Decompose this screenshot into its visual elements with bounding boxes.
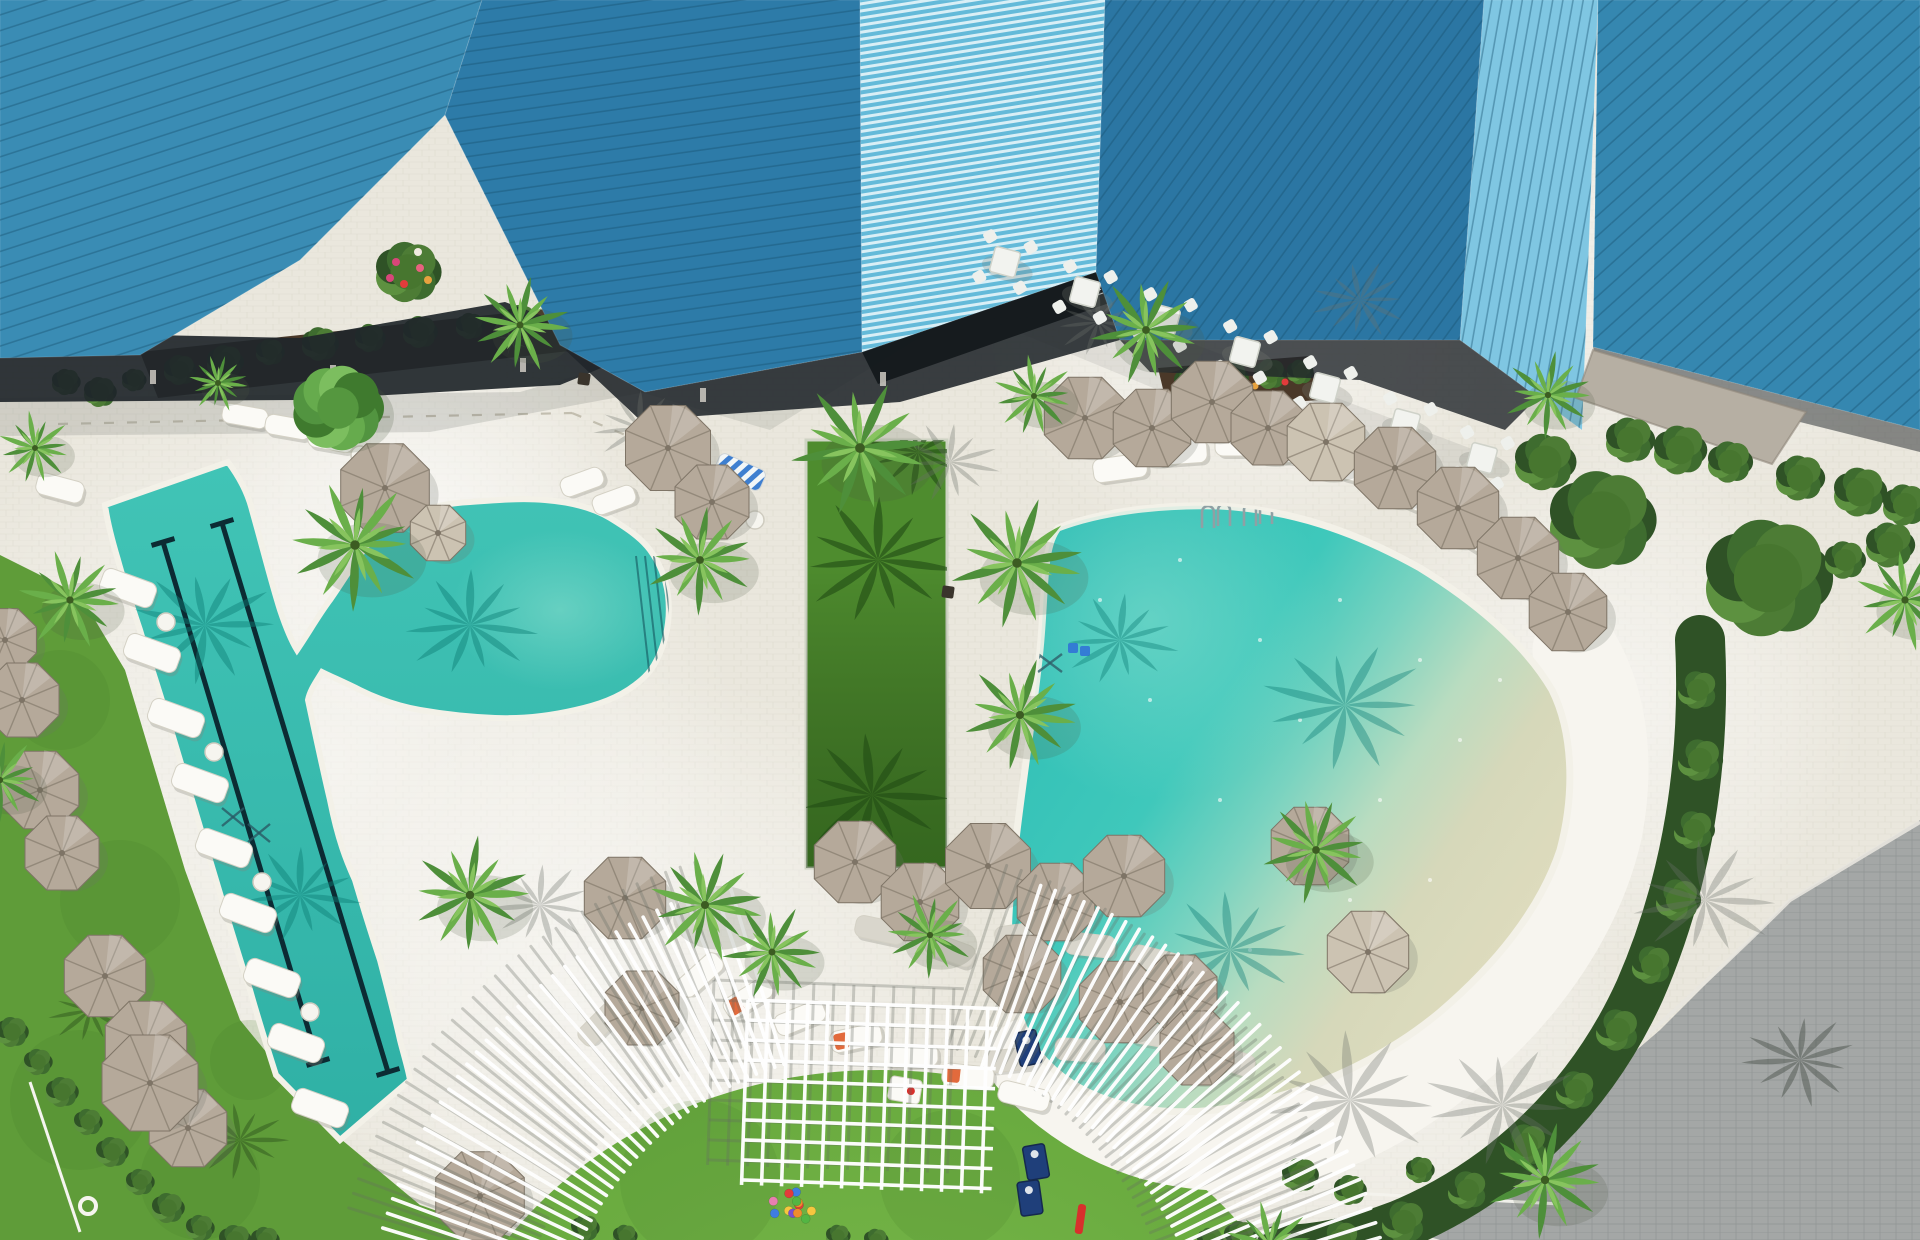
shrub [1529,446,1562,479]
umbrella-pole [1209,399,1215,405]
umbrella-pole [1455,505,1461,511]
palm-crown [32,445,38,451]
shrub [1666,436,1695,465]
pool-float [1080,646,1090,656]
umbrella-pole [1323,439,1329,445]
shrub [1893,493,1917,517]
flower [1282,379,1289,386]
play-ball [801,1214,810,1223]
flower [392,258,400,266]
water-sparkle [1378,798,1382,802]
column-post [150,370,156,384]
shrub [1565,1079,1587,1101]
play-ball [784,1189,793,1198]
dining-table [1229,336,1261,368]
umbrella-pole [147,1080,153,1086]
palm-crown [517,322,524,329]
umbrella-pole [709,499,715,505]
board [1017,1180,1044,1217]
umbrella-pole [1365,949,1371,955]
shrub [1392,1210,1416,1234]
shrub [1412,1162,1427,1177]
water-sparkle [1418,658,1422,662]
side-table [157,613,175,631]
palm-crown [1012,558,1022,568]
umbrella-pole [59,850,65,856]
palm-crown [855,443,865,453]
pool-float [1068,643,1078,653]
cornhole-board [1017,1180,1044,1217]
side-table [301,1003,319,1021]
palm-crown [769,949,776,956]
umbrella-pole [1149,425,1155,431]
shrub [3,1023,21,1041]
shrub [1606,1018,1630,1042]
play-ball [793,1209,802,1218]
trash-bin [577,372,591,386]
umbrella-pole [2,637,8,643]
palm-crown [701,901,709,909]
shrub [1457,1179,1479,1201]
shrub [53,1083,71,1101]
palm-crown [1142,326,1150,334]
water-sparkle [1458,738,1462,742]
shrub [159,1199,177,1217]
palm-crown [215,380,221,386]
palm-crown [927,932,933,938]
palm-crown [1031,393,1037,399]
palm-crown [1545,392,1551,398]
water-sparkle [1218,798,1222,802]
umbrella-pole [102,973,108,979]
shrub [1687,679,1709,701]
dining-table [1069,276,1101,308]
umbrella-pole [435,530,441,536]
umbrella-pole [1082,415,1088,421]
dining-table [989,246,1021,278]
shrub [80,1114,95,1129]
shrub [1641,954,1663,976]
umbrella-pole [1121,873,1127,879]
palm-crown [1901,596,1908,603]
column-post [880,372,886,386]
side-table [205,743,223,761]
water-sparkle [1338,598,1342,602]
palm-crown [1016,711,1024,719]
umbrella-pole [852,859,858,865]
water-sparkle [1148,698,1152,702]
shrub [1688,748,1712,772]
umbrella-pole [1117,999,1123,1005]
column-post [700,388,706,402]
foliage-clump [317,387,358,428]
water-sparkle [1348,898,1352,902]
umbrella-pole [665,445,671,451]
shrub [1787,465,1813,491]
shrub [1734,544,1802,612]
play-ball [807,1206,816,1215]
dining-table [1309,372,1341,404]
palm-crown [696,556,704,564]
water-sparkle [1498,678,1502,682]
flower [414,248,422,256]
shrub [103,1143,121,1161]
shrub [30,1054,45,1069]
shrub [1718,450,1742,474]
palm-crown [66,596,73,603]
flower [424,276,432,284]
umbrella-pole [1565,609,1571,615]
shrub [132,1174,147,1189]
umbrella-pole [1265,425,1271,431]
water-sparkle [1098,598,1102,602]
palm-crown [350,540,360,550]
water-sparkle [1258,638,1262,642]
play-ball [792,1197,801,1206]
shrub [1834,549,1856,571]
flower [400,280,408,288]
shrub [1617,427,1643,453]
aerial-resort-photo: NTE [0,0,1920,1240]
play-ball [770,1209,779,1218]
flower [386,274,394,282]
side-table [253,873,271,891]
water-sparkle [1178,558,1182,562]
palm-crown [1541,1176,1549,1184]
umbrella-pole [1392,465,1398,471]
water-sparkle [1428,878,1432,882]
umbrella-pole [185,1125,191,1131]
umbrella-pole [382,485,388,491]
shrub [1573,491,1630,548]
umbrella-pole [19,697,25,703]
palm-crown [466,891,474,899]
umbrella-pole [1515,555,1521,561]
trash-bin [941,585,955,599]
shrub [1846,478,1875,507]
palm-crown [1312,846,1320,854]
play-ball [769,1197,778,1206]
shrub [192,1220,207,1235]
shrub [1683,819,1705,841]
umbrella-pole [985,863,991,869]
scene-canvas: NTE [0,0,1920,1240]
roof-seams [1096,0,1484,340]
flower [416,264,424,272]
